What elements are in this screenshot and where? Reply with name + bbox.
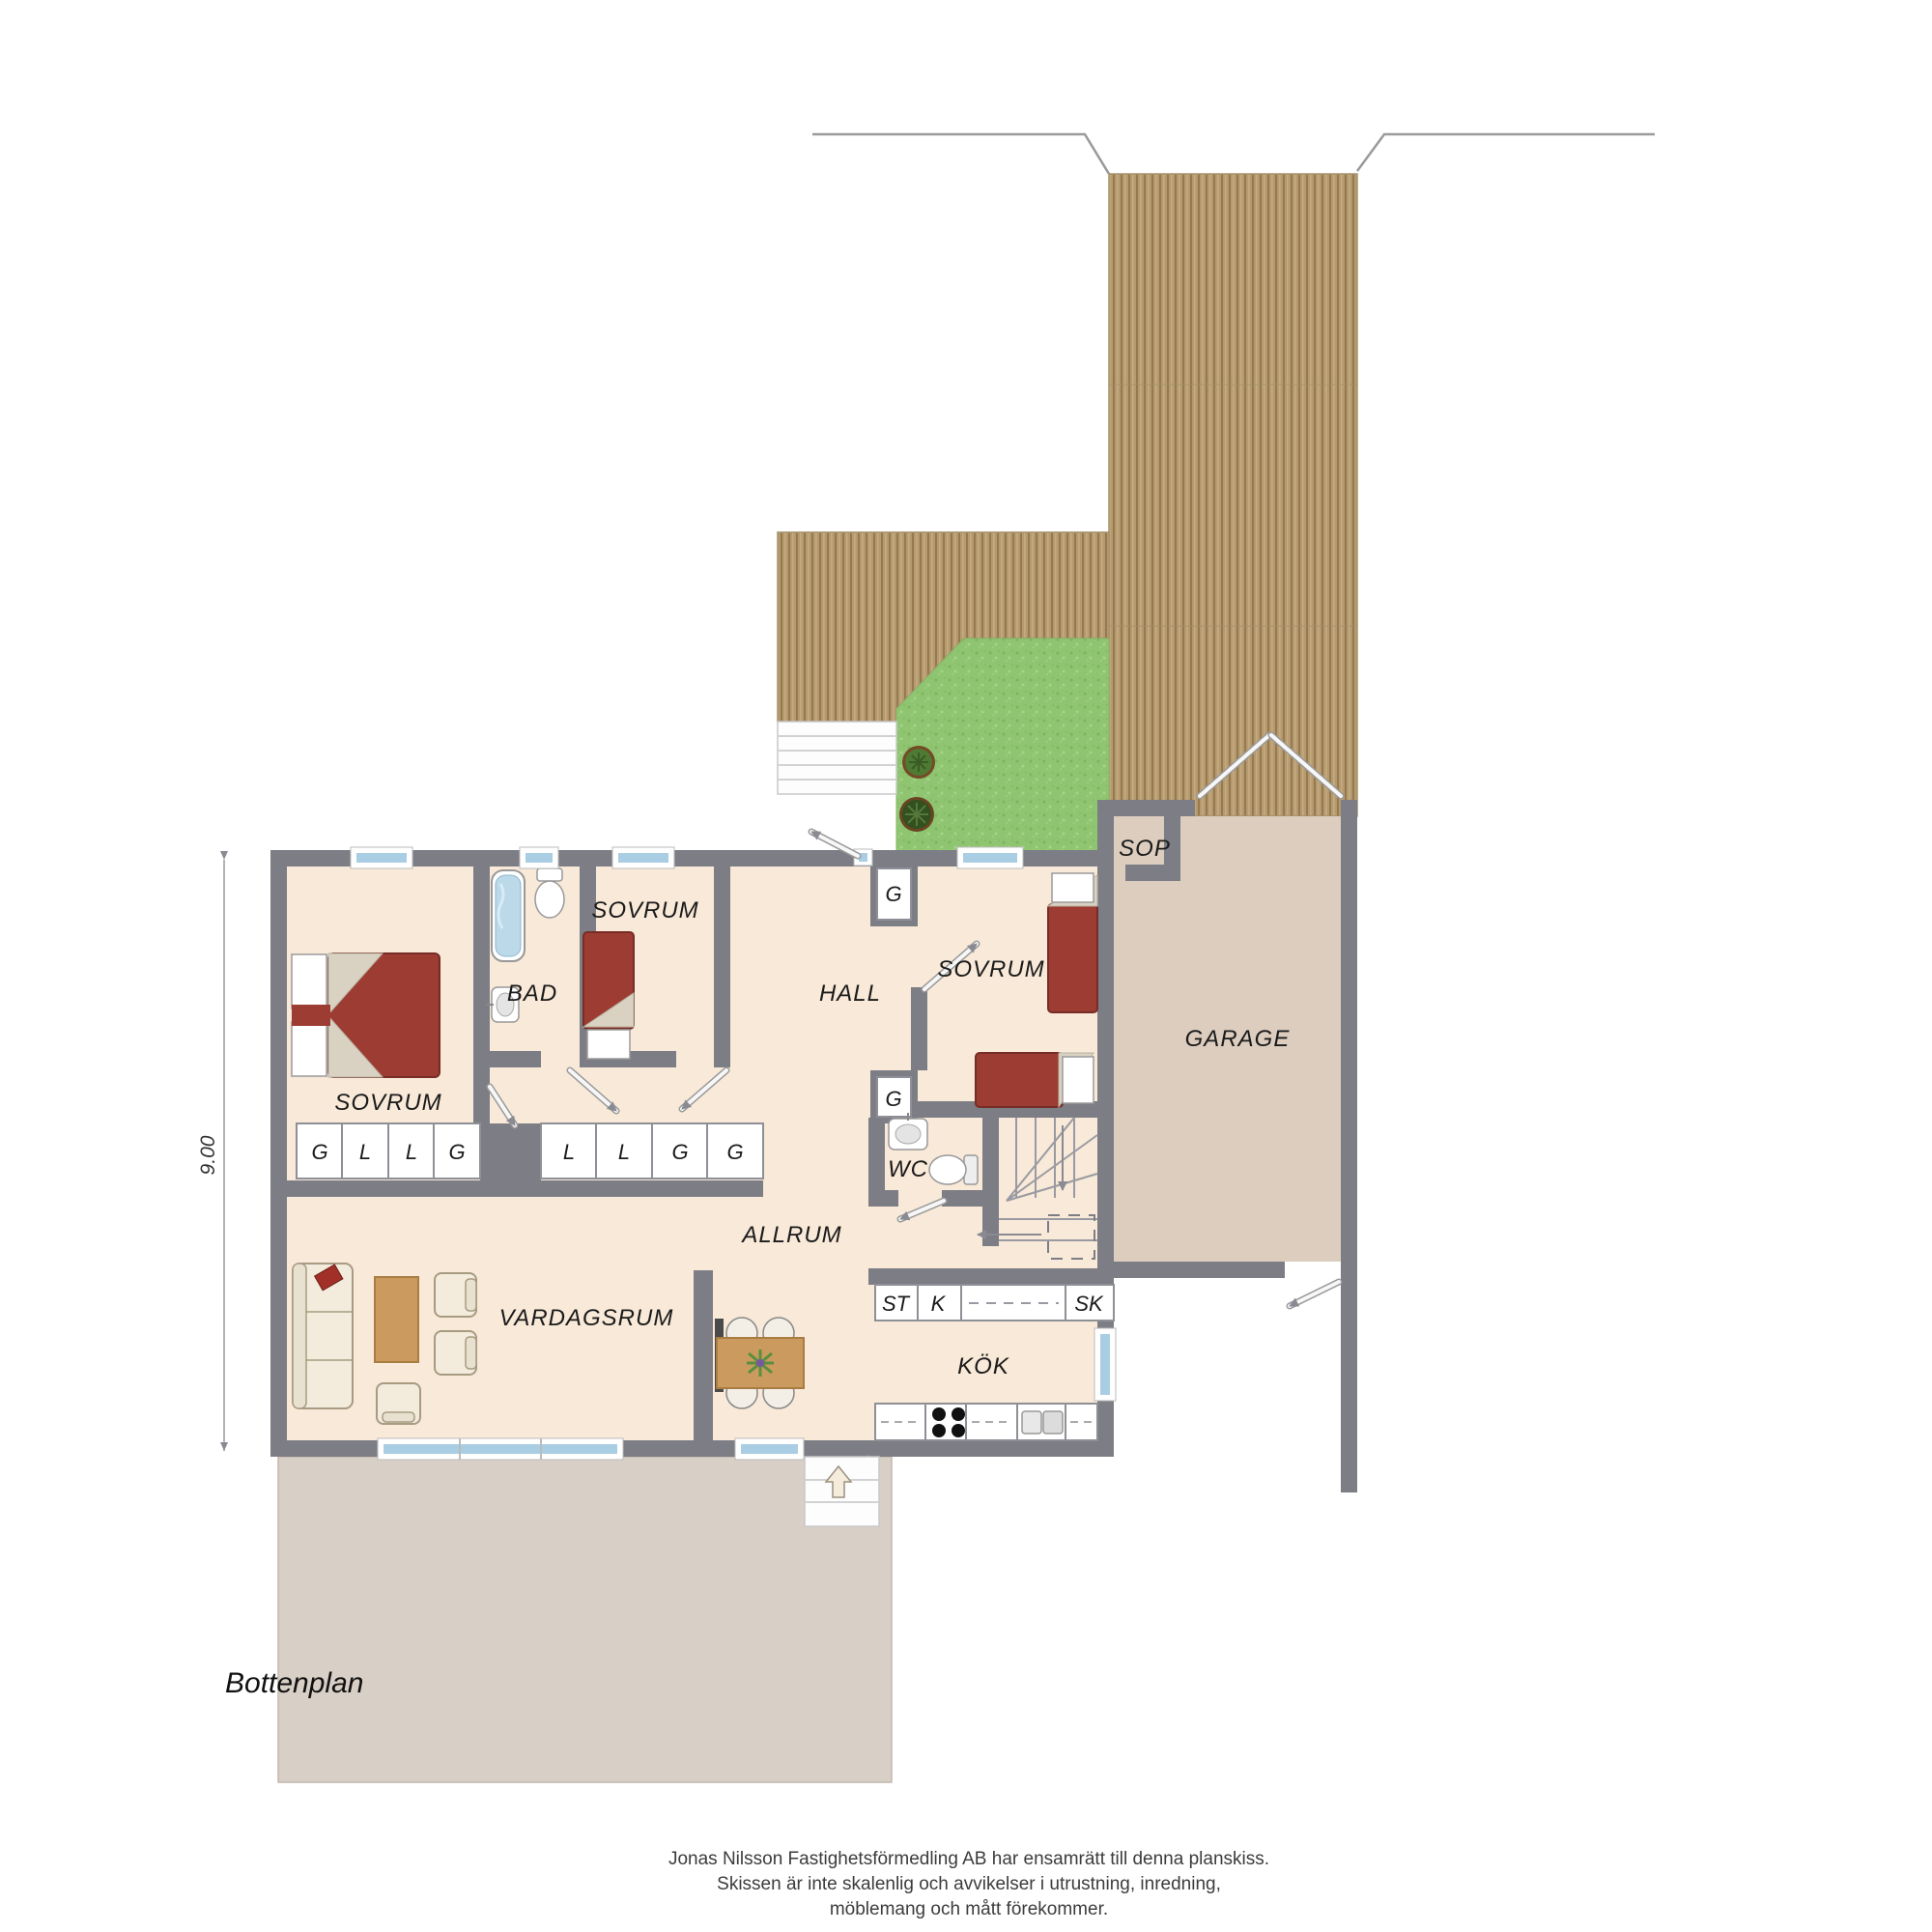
closet-label: G (448, 1140, 465, 1164)
room-label-sovrum2: SOVRUM (591, 897, 698, 923)
window (612, 847, 674, 868)
wall-vardagsrum-east (694, 1270, 713, 1457)
footer-line: möblemang och mått förekommer. (830, 1899, 1108, 1919)
floorplan-page: G L L G L L G G G G ST K SK (0, 0, 1932, 1932)
wall-bath-south (490, 1051, 541, 1067)
page-title: Bottenplan (225, 1667, 363, 1699)
window-band (378, 1438, 623, 1460)
window (735, 1438, 804, 1460)
room-label-wc: WC (888, 1156, 928, 1182)
hall-closet-lower: G (877, 1077, 911, 1117)
cabinet-label: ST (882, 1292, 911, 1316)
footer-line: Jonas Nilsson Fastighetsförmedling AB ha… (668, 1849, 1269, 1869)
room-label-vardagsrum: VARDAGSRUM (499, 1305, 674, 1331)
room-label-bad: BAD (507, 980, 557, 1007)
closet-label: L (359, 1140, 371, 1164)
armchair (377, 1383, 420, 1424)
closet-label: L (563, 1140, 575, 1164)
kitchen-counter (875, 1404, 1097, 1440)
cabinet-label: K (931, 1292, 947, 1316)
closet-label: G (885, 882, 901, 906)
room-label-hall: HALL (819, 980, 881, 1007)
room-label-allrum: ALLRUM (740, 1222, 841, 1248)
room-label-garage: GARAGE (1185, 1026, 1291, 1052)
bathtub-icon (492, 870, 525, 961)
kitchen-cabinet-row: ST K SK (875, 1285, 1114, 1321)
wall-wc-north (911, 1101, 982, 1118)
footer-line: Skissen är inte skalenlig och avvikelser… (717, 1874, 1221, 1894)
wall-closet-pillar (480, 1123, 541, 1180)
hall-closet-upper: G (877, 868, 911, 920)
closet-label: G (885, 1087, 901, 1111)
wall-garage-east (1341, 800, 1357, 1492)
wall-kitchen-north (868, 1268, 1114, 1285)
wall-wc-south-left (868, 1190, 898, 1207)
table-plant-icon (747, 1350, 774, 1377)
wall-sop-south (1125, 865, 1180, 881)
closet-row-2: L L G G (541, 1123, 763, 1179)
single-bed (976, 1053, 1094, 1107)
wall-garage-north-left (1114, 800, 1195, 816)
closet-label: L (406, 1140, 417, 1164)
closet-label: G (726, 1140, 743, 1164)
entrance-steps (805, 1457, 879, 1526)
master-bed (292, 953, 440, 1077)
single-bed (1048, 873, 1097, 1012)
window (1094, 1328, 1116, 1401)
coffee-table (375, 1277, 418, 1362)
deck-tall (1109, 174, 1357, 816)
sink-icon (889, 1113, 927, 1150)
wall-closet-south (270, 1180, 763, 1197)
closet-row-1: G L L G (297, 1123, 480, 1179)
window (351, 847, 412, 868)
wall-hall-bedroom3 (911, 987, 927, 1070)
window (520, 847, 558, 868)
closet-label: L (618, 1140, 630, 1164)
room-label-kok: KÖK (957, 1353, 1009, 1379)
patio-terrace (278, 1457, 892, 1782)
window (957, 847, 1023, 868)
deck-steps (778, 722, 896, 794)
cabinet-label: SK (1074, 1292, 1104, 1316)
single-bed (583, 932, 634, 1059)
wall-bedroom2-east (714, 867, 730, 1067)
room-label-sop: SOP (1119, 836, 1171, 862)
wall-stairs-west (982, 1101, 999, 1246)
plant-pot-icon (902, 746, 935, 779)
floorplan-drawing: G L L G L L G G G G ST K SK (0, 0, 1932, 1932)
room-label-sovrum3: SOVRUM (937, 956, 1044, 982)
closet-label: G (671, 1140, 688, 1164)
plant-pot-icon (899, 797, 934, 832)
closet-label: G (311, 1140, 327, 1164)
toilet-icon (929, 1155, 978, 1184)
wall-wc-south-right (942, 1190, 982, 1207)
wall-garage-south (1114, 1262, 1285, 1278)
armchair (435, 1273, 476, 1317)
room-label-sovrum1: SOVRUM (334, 1090, 441, 1116)
toilet-icon (535, 868, 564, 918)
dimension-label: 9.00 (197, 1135, 219, 1175)
sofa (293, 1264, 353, 1408)
wall-west (270, 850, 287, 1457)
armchair (435, 1331, 476, 1375)
